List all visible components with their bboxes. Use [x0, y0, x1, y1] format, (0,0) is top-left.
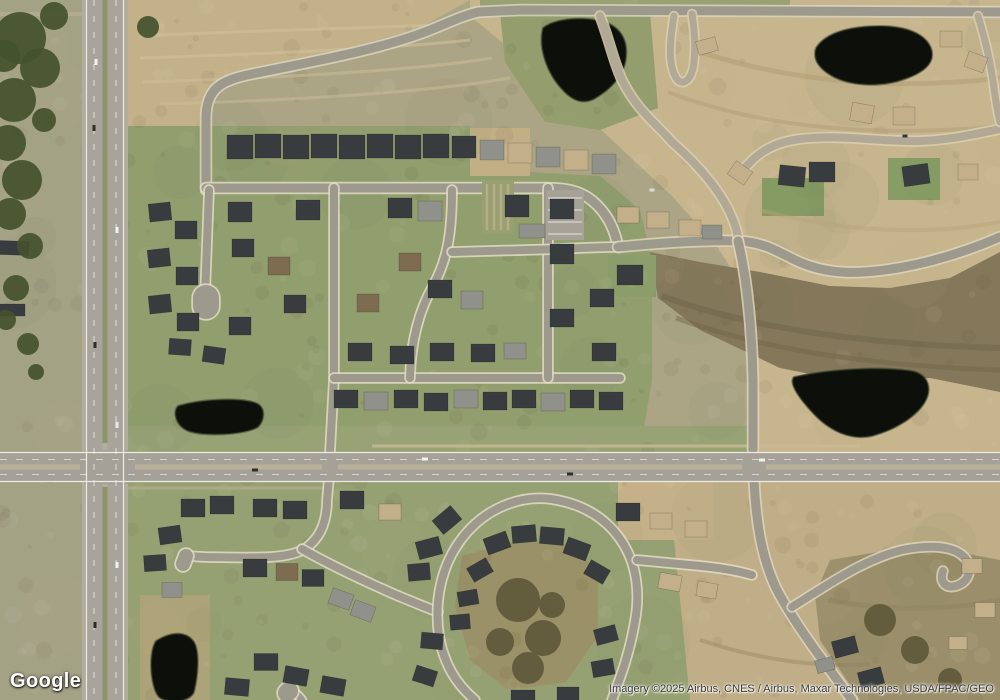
street-b [330, 188, 334, 452]
house-footprint [181, 499, 205, 517]
house-footprint [407, 563, 430, 582]
house-footprint [418, 201, 442, 221]
vehicle [759, 459, 765, 462]
house-footprint [557, 687, 579, 700]
scrub-canopy [525, 620, 561, 656]
house-footprint [650, 513, 672, 529]
house-footprint [388, 198, 412, 218]
house-footprint [176, 267, 198, 285]
house-footprint [536, 147, 560, 167]
house-footprint [420, 632, 443, 650]
house-footprint [504, 343, 526, 359]
tree-canopy [17, 233, 43, 259]
house-footprint [550, 199, 574, 219]
house-footprint [229, 317, 251, 335]
house-footprint [202, 346, 226, 365]
house-footprint [940, 31, 962, 47]
tree-canopy [2, 160, 42, 200]
scrub-canopy [512, 652, 544, 684]
house-footprint [617, 207, 639, 223]
house-footprint [148, 294, 172, 314]
satellite-imagery-canvas [0, 0, 1000, 700]
house-footprint [379, 504, 401, 520]
pond-top-right [815, 26, 932, 85]
tree-canopy [3, 275, 29, 301]
clubhouse-street [452, 247, 618, 252]
street-b-hammerhead [183, 556, 186, 564]
house-footprint [617, 265, 643, 285]
house-footprint [302, 570, 324, 587]
house-footprint [243, 559, 267, 577]
bl-culdesac-bulb [287, 691, 289, 693]
tree-canopy [32, 108, 56, 132]
house-footprint [457, 589, 479, 607]
house-footprint [809, 162, 835, 182]
house-footprint [592, 343, 616, 361]
house-footprint [511, 690, 535, 700]
house-footprint [454, 390, 478, 408]
house-footprint [679, 220, 701, 236]
google-logo[interactable]: Google [10, 670, 81, 693]
house-footprint [177, 313, 199, 331]
vehicle [116, 562, 119, 568]
house-footprint [227, 135, 253, 159]
vehicle [650, 189, 655, 192]
vehicle [95, 59, 98, 65]
house-footprint [893, 107, 915, 125]
house-footprint [168, 338, 191, 355]
imagery-attribution: Imagery ©2025 Airbus, CNES / Airbus, Max… [609, 683, 994, 695]
house-footprint [508, 143, 532, 163]
house-footprint [276, 564, 298, 581]
house-footprint [480, 140, 504, 160]
house-footprint [975, 603, 995, 618]
house-footprint [394, 390, 418, 408]
house-footprint [395, 135, 421, 159]
vehicle [94, 622, 97, 628]
house-footprint [424, 393, 448, 411]
house-footprint [311, 134, 337, 158]
house-footprint [148, 202, 172, 222]
house-footprint [143, 554, 166, 571]
house-footprint [616, 503, 640, 521]
vehicle [116, 227, 119, 233]
house-footprint [339, 135, 365, 159]
pond-left-middle [175, 399, 263, 434]
house-footprint [254, 654, 278, 671]
house-footprint [452, 136, 476, 158]
house-footprint [658, 572, 682, 592]
house-footprint [364, 392, 388, 410]
scrub-canopy [901, 636, 929, 664]
house-footprint [228, 202, 252, 222]
house-footprint [483, 392, 507, 410]
house-footprint [570, 390, 594, 408]
house-footprint [511, 524, 536, 543]
house-footprint [430, 343, 454, 361]
house-footprint [696, 581, 718, 599]
house-footprint [461, 291, 483, 309]
house-footprint [175, 221, 197, 239]
house-footprint [962, 559, 982, 574]
house-footprint [541, 393, 565, 411]
house-footprint [428, 280, 452, 298]
house-footprint [423, 134, 449, 158]
house-footprint [685, 521, 707, 537]
house-footprint [512, 390, 536, 408]
house-footprint [505, 195, 529, 217]
vehicle [93, 125, 96, 131]
house-footprint [224, 677, 249, 696]
house-footprint [590, 289, 614, 307]
house-footprint [550, 244, 574, 264]
house-footprint [958, 164, 978, 180]
map-viewport[interactable]: Google Imagery ©2025 Airbus, CNES / Airb… [0, 0, 1000, 700]
vehicle [903, 135, 908, 138]
vehicle [252, 469, 258, 472]
house-footprint [283, 135, 309, 159]
house-footprint [255, 134, 281, 158]
house-footprint [850, 102, 875, 124]
house-footprint [539, 526, 564, 545]
house-footprint [564, 150, 588, 170]
house-footprint [268, 257, 290, 275]
house-footprint [296, 200, 320, 220]
vehicle [422, 458, 428, 461]
house-footprint [340, 491, 364, 509]
scrub-canopy [486, 628, 514, 656]
house-footprint [158, 525, 182, 545]
tree-canopy [28, 364, 44, 380]
pond-bottom-left [151, 634, 198, 700]
house-footprint [162, 583, 182, 598]
scrub-canopy [496, 578, 540, 622]
house-footprint [147, 248, 171, 268]
house-footprint [210, 496, 234, 514]
vehicle [567, 473, 573, 476]
house-footprint [592, 154, 616, 174]
house-footprint [778, 165, 806, 188]
scrub-canopy [864, 604, 896, 636]
vehicle [116, 422, 119, 428]
vehicle [94, 342, 97, 348]
house-footprint [449, 614, 470, 631]
house-footprint [283, 501, 307, 519]
scrub-canopy [539, 592, 565, 618]
house-footprint [348, 343, 372, 361]
house-footprint [232, 239, 254, 257]
house-footprint [253, 499, 277, 517]
house-footprint [471, 344, 495, 362]
house-footprint [334, 390, 358, 408]
house-footprint [599, 392, 623, 410]
house-footprint [390, 346, 414, 364]
tree-canopy [40, 2, 68, 30]
house-footprint [519, 224, 545, 238]
tree-canopy [17, 333, 39, 355]
house-footprint [284, 295, 306, 313]
house-footprint [550, 309, 574, 327]
house-footprint [399, 253, 421, 271]
house-footprint [647, 212, 669, 228]
house-footprint [367, 134, 393, 158]
culdesac-street [205, 190, 209, 296]
house-footprint [949, 637, 967, 650]
house-footprint [591, 658, 615, 678]
house-footprint [357, 294, 379, 312]
house-footprint [702, 225, 722, 239]
house-footprint [902, 163, 931, 186]
tree-canopy [137, 16, 159, 38]
